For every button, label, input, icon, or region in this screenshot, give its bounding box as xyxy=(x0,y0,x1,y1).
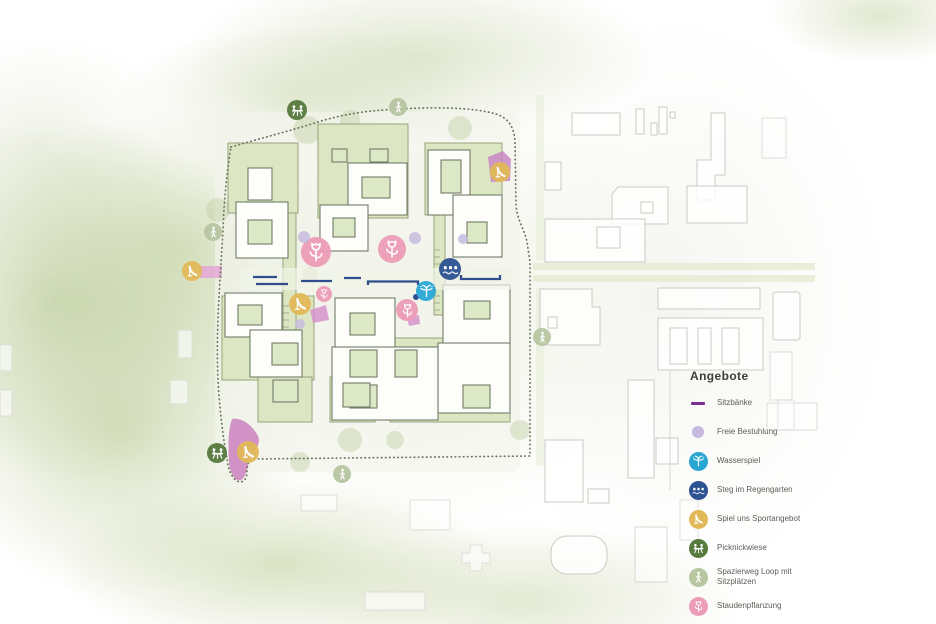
legend-item-sitzbank: Sitzbänke xyxy=(688,393,822,413)
legend-item-staudenpflanzung: Staudenpflanzung xyxy=(688,596,822,616)
legend-item-label: Wasserspiel xyxy=(717,456,760,466)
legend-items: SitzbänkeFreie BestuhlungWasserspielSteg… xyxy=(688,393,822,616)
legend-item-label: Sitzbänke xyxy=(717,398,752,408)
freie-bestuhlung-icon xyxy=(688,422,708,442)
legend-item-steg: Steg im Regengarten xyxy=(688,480,822,500)
picknickwiese-icon xyxy=(688,538,708,558)
legend: Angebote SitzbänkeFreie BestuhlungWasser… xyxy=(688,369,822,624)
legend-item-spazierweg: Spazierweg Loop mit Sitzplätzen xyxy=(688,567,822,587)
legend-item-label: Spazierweg Loop mit Sitzplätzen xyxy=(717,567,813,587)
legend-item-label: Steg im Regengarten xyxy=(717,485,793,495)
wasserspiel-icon xyxy=(688,451,708,471)
spazierweg-icon xyxy=(688,567,708,587)
legend-item-picknickwiese: Picknickwiese xyxy=(688,538,822,558)
steg-icon xyxy=(688,480,708,500)
legend-item-label: Spiel uns Sportangebot xyxy=(717,514,800,524)
staudenpflanzung-icon xyxy=(688,596,708,616)
legend-item-label: Picknickwiese xyxy=(717,543,767,553)
site-plan-page: Angebote SitzbänkeFreie BestuhlungWasser… xyxy=(0,0,936,624)
sitzbank-icon xyxy=(688,393,708,413)
spiel-sport-icon xyxy=(688,509,708,529)
legend-item-label: Freie Bestuhlung xyxy=(717,427,777,437)
legend-item-wasserspiel: Wasserspiel xyxy=(688,451,822,471)
legend-item-label: Staudenpflanzung xyxy=(717,601,782,611)
legend-item-freie-bestuhlung: Freie Bestuhlung xyxy=(688,422,822,442)
legend-title: Angebote xyxy=(690,369,822,383)
legend-item-spiel-sport: Spiel uns Sportangebot xyxy=(688,509,822,529)
